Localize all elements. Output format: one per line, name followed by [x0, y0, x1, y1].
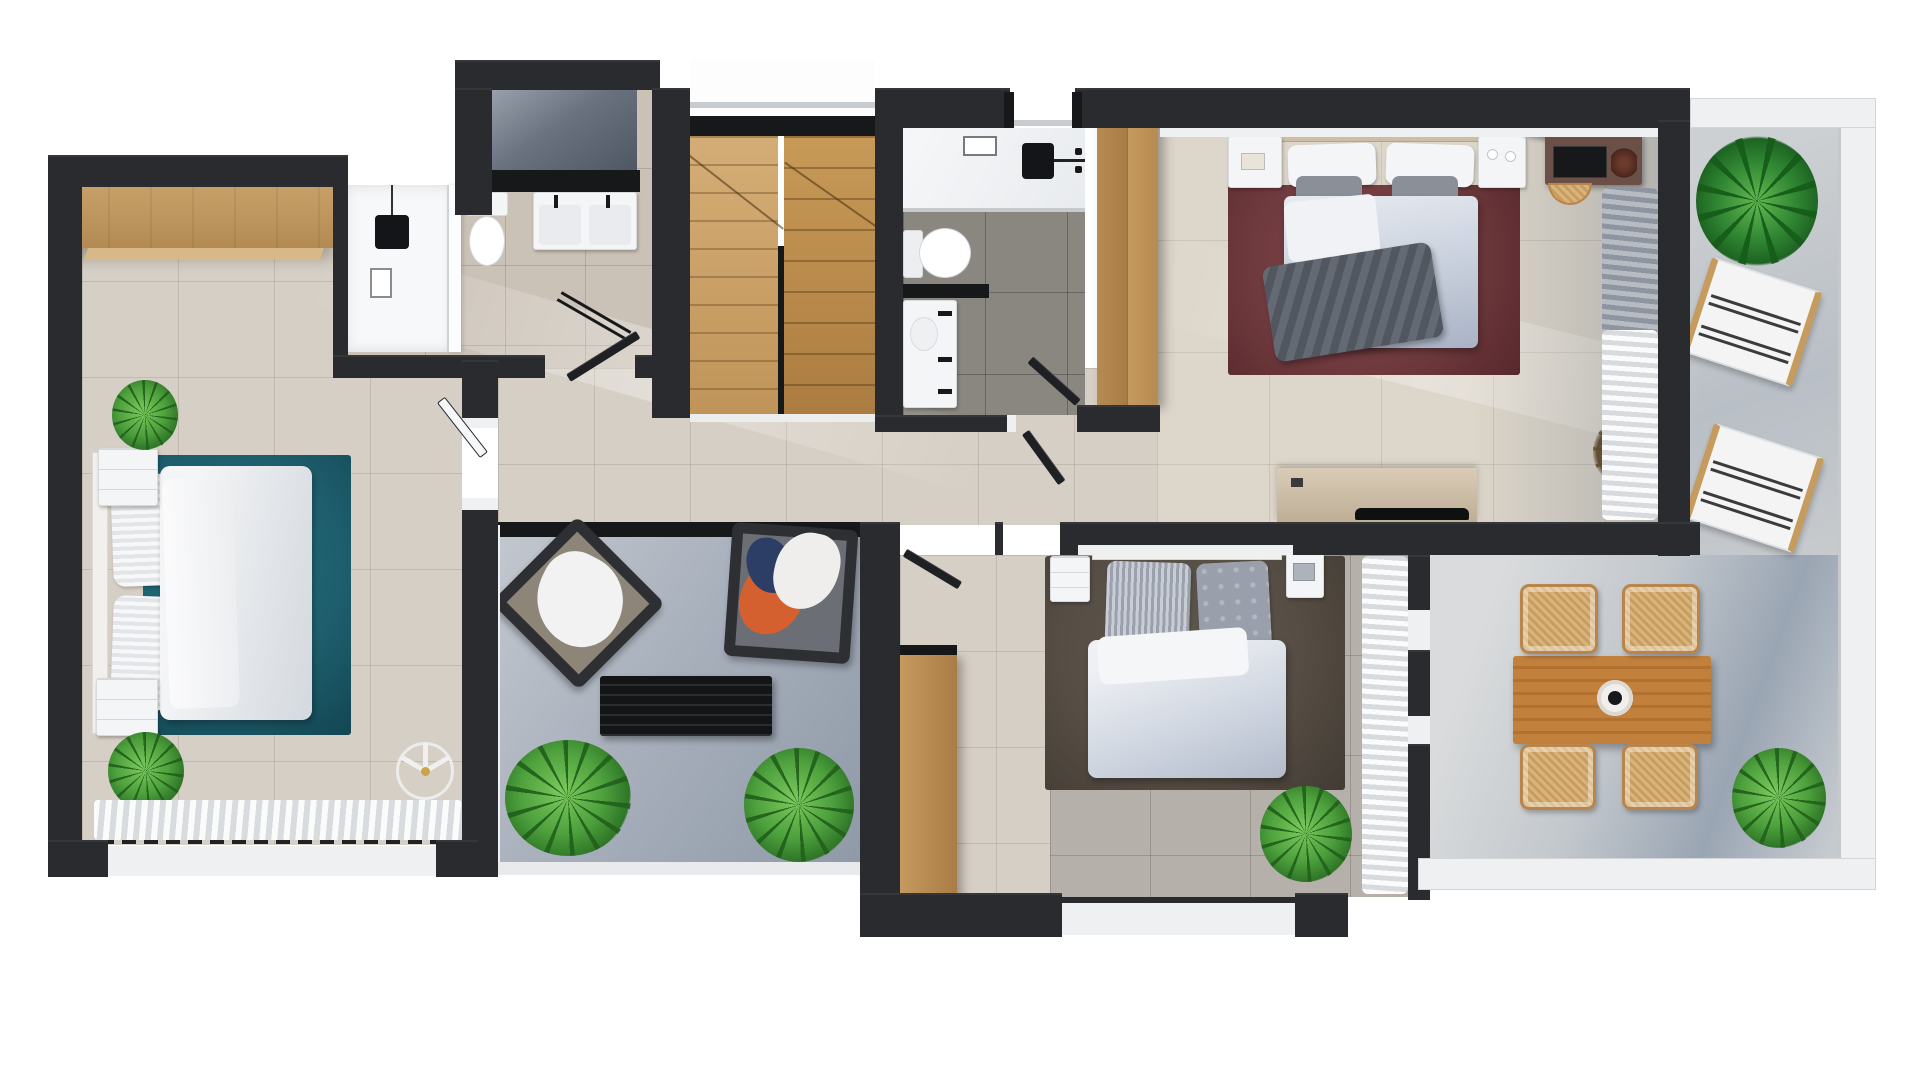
vase: [1597, 680, 1633, 716]
parapet-bottom: [1418, 858, 1876, 890]
book: [1293, 563, 1315, 581]
bedroom2-headboard-ledge: [1078, 545, 1293, 555]
balustrade-line: [690, 102, 875, 108]
nightstand: [96, 678, 158, 736]
bathroom2-shelf: [903, 284, 989, 298]
vase-center: [1608, 691, 1622, 705]
stair-flight-left: [690, 136, 778, 418]
wall-under-wardrobe: [1077, 405, 1160, 432]
stair-landing: [690, 60, 875, 118]
shower-arm: [1054, 159, 1085, 162]
doorframe: [462, 498, 498, 510]
utility-counter-edge: [488, 170, 640, 192]
wall-bed2-right-b: [1408, 650, 1430, 716]
faucet-icon: [938, 389, 952, 394]
desk-plant: [1611, 147, 1637, 179]
patio-bottom-edge: [498, 862, 862, 875]
bedroom1-wardrobe-shelf: [84, 248, 324, 260]
wall-top-master: [1075, 88, 1690, 128]
dining-chair: [1622, 584, 1700, 654]
faucet-icon: [606, 195, 610, 208]
wall-master-bottom-jamb: [995, 522, 1003, 555]
wall-master-right: [1658, 120, 1690, 556]
corner-block-br: [436, 840, 478, 877]
gray-curtain: [1602, 188, 1658, 334]
shower-stem: [391, 185, 393, 217]
potted-plant: [108, 732, 184, 810]
tv-icon: [1355, 508, 1469, 520]
bedroom2-side-window: [1408, 610, 1430, 650]
fan-hub: [421, 767, 430, 776]
book: [1241, 153, 1265, 170]
stair-bottom-edge: [690, 414, 875, 422]
wall-bed1-right-lower: [462, 508, 498, 877]
bedroom1-wardrobe: [66, 180, 336, 248]
wall-bed2-bottom-left: [860, 893, 1062, 937]
palm-plant: [1696, 136, 1818, 266]
bedroom2-bed: [1088, 548, 1286, 778]
utility-shower-tray: [490, 88, 637, 174]
entry-threshold: [1014, 120, 1072, 126]
parapet-right: [1838, 98, 1876, 890]
floor-plan-scene: [0, 0, 1920, 1080]
dining-chair: [1520, 744, 1596, 810]
tv-sideboard: [1277, 468, 1477, 522]
wall-bed1-right-upper: [462, 360, 498, 425]
faucet-icon: [938, 311, 952, 316]
wall-bath2-bottom: [875, 415, 1007, 432]
vanity-desk: [1545, 133, 1642, 185]
potted-plant: [112, 380, 178, 450]
wall-top-left: [48, 155, 348, 187]
nightstand: [98, 448, 158, 506]
ceiling-fan: [396, 742, 454, 800]
wall-bed2-bottom-right: [1295, 893, 1348, 937]
basin: [589, 205, 631, 245]
decor-object: [1291, 478, 1303, 487]
corner-block-bl: [48, 840, 108, 877]
stair-stringer: [778, 246, 784, 418]
nightstand: [1286, 552, 1324, 598]
bedroom2-window: [1062, 897, 1295, 935]
wall-utility-left: [455, 88, 492, 215]
master-bed: [1280, 126, 1482, 350]
corridor-wardrobe: [900, 655, 957, 907]
bedroom1-window-sill: [82, 846, 474, 876]
master-headboard-ledge: [1160, 128, 1660, 137]
nightstand: [1050, 556, 1090, 602]
cup: [1505, 151, 1516, 162]
entry-jamb: [1072, 92, 1082, 128]
cup: [1487, 149, 1498, 160]
dining-chair: [1520, 584, 1598, 654]
wall-bed1-bath1: [333, 155, 348, 378]
shower-valve: [1075, 148, 1082, 155]
bedroom1-window-curtain: [94, 800, 462, 840]
bedroom1-window-track: [100, 840, 460, 844]
wall-living-right: [860, 522, 900, 937]
bedroom2-curtain: [1362, 556, 1408, 894]
soap-niche: [963, 136, 997, 156]
entry-jamb: [1004, 92, 1014, 128]
dining-table: [1513, 656, 1711, 744]
bathroom2-shower: [903, 128, 1085, 212]
stair-flight-right: [784, 136, 875, 418]
white-curtain: [1602, 330, 1658, 520]
wall-utility-top: [455, 60, 660, 90]
bedroom2-side-window-2: [1408, 716, 1430, 744]
bathroom2-vanity: [903, 300, 957, 408]
faucet-icon: [554, 195, 558, 208]
basin: [539, 205, 581, 245]
parapet-top: [1690, 98, 1876, 128]
terrace-plant: [1732, 748, 1826, 848]
walkin-shower: [345, 185, 455, 352]
wall-stairs-left: [652, 88, 690, 418]
patio-plant: [505, 740, 631, 856]
stair-top-edge: [688, 116, 877, 136]
staircase: [690, 136, 875, 418]
coffee-table: [600, 676, 772, 736]
basin: [910, 317, 938, 351]
patio-plant: [744, 748, 854, 862]
wall-top-bath2: [875, 88, 1010, 128]
bedroom2-plant: [1260, 786, 1352, 882]
nightstand: [1228, 136, 1282, 188]
bowl: [919, 228, 971, 278]
shower-head-icon: [375, 215, 409, 249]
nightstand: [1478, 136, 1526, 188]
soap-niche: [370, 268, 392, 298]
armchair: [723, 522, 858, 664]
toilet: [903, 228, 971, 280]
faucet-icon: [938, 357, 952, 362]
corridor-wardrobe-top: [900, 645, 957, 655]
hall-wardrobe: [1097, 115, 1158, 405]
duvet-fold: [162, 477, 240, 709]
desk-tray: [1553, 146, 1607, 178]
shower-head-icon: [1022, 143, 1054, 179]
dining-chair: [1622, 744, 1698, 810]
doorframe: [1007, 415, 1016, 432]
wall-left: [48, 155, 82, 877]
double-washbasin: [533, 192, 637, 250]
wall-stairs-right: [875, 88, 903, 418]
wall-bath1-bottom: [333, 355, 545, 378]
wall-bed2-right-a: [1408, 555, 1430, 610]
bowl: [469, 216, 505, 266]
